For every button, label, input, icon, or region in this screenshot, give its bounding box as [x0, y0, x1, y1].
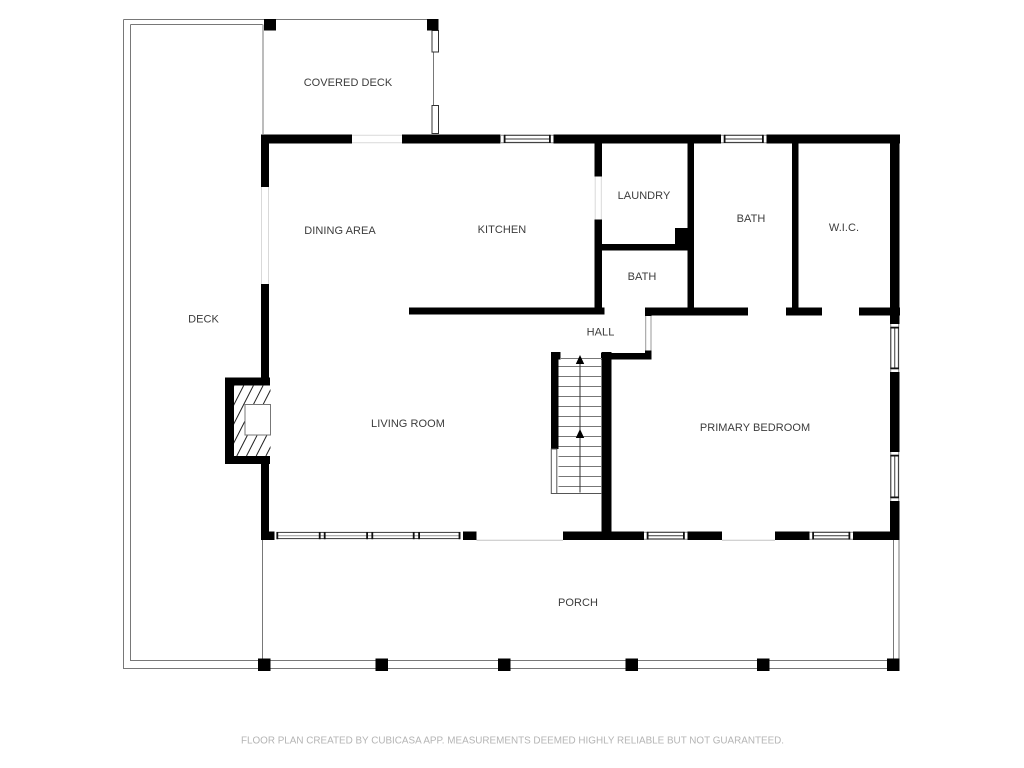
svg-text:DINING AREA: DINING AREA — [304, 225, 376, 237]
svg-text:KITCHEN: KITCHEN — [478, 224, 527, 236]
svg-text:W.I.C.: W.I.C. — [829, 222, 859, 234]
svg-text:LIVING ROOM: LIVING ROOM — [371, 418, 445, 430]
svg-text:DECK: DECK — [188, 314, 219, 326]
svg-text:COVERED DECK: COVERED DECK — [304, 77, 393, 89]
svg-text:HALL: HALL — [587, 327, 615, 339]
svg-text:LAUNDRY: LAUNDRY — [618, 190, 671, 202]
svg-text:PORCH: PORCH — [558, 597, 598, 609]
svg-text:FLOOR PLAN CREATED BY CUBICASA: FLOOR PLAN CREATED BY CUBICASA APP. MEAS… — [241, 736, 784, 747]
svg-text:PRIMARY BEDROOM: PRIMARY BEDROOM — [700, 422, 810, 434]
svg-text:BATH: BATH — [737, 213, 766, 225]
svg-text:BATH: BATH — [628, 271, 657, 283]
